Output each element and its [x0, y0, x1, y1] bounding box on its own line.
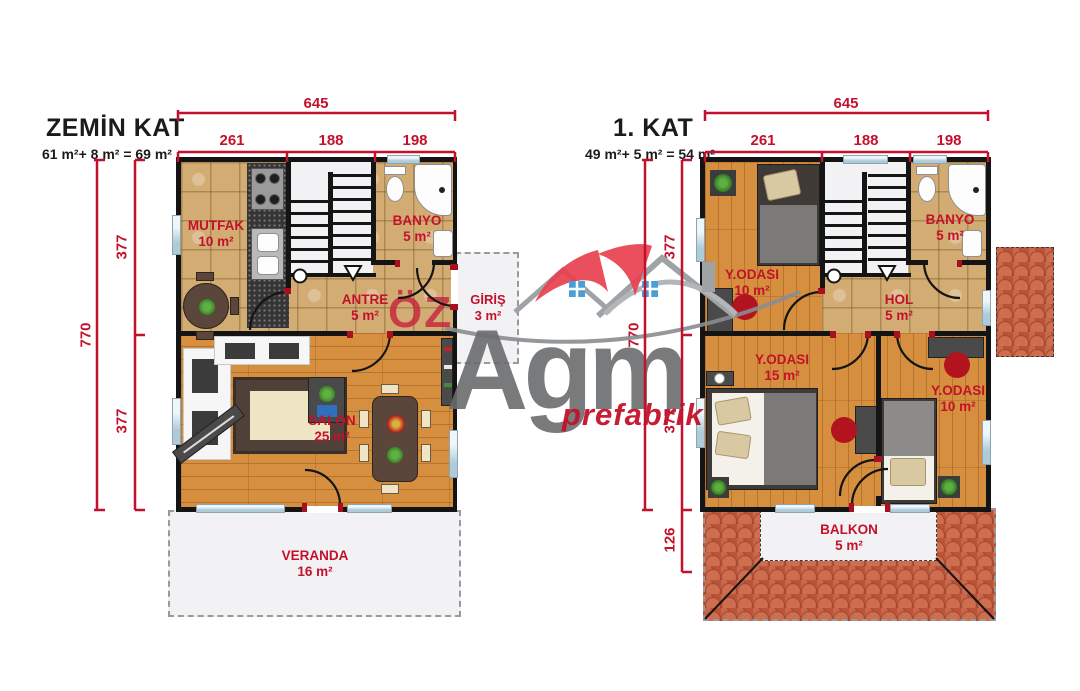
wall-bath2-bottom-b [960, 260, 986, 265]
window-bedroom10-south [890, 504, 930, 513]
logo-window-2 [642, 281, 658, 297]
window-kitchen-west [172, 215, 181, 255]
room-label-yodasi-10: Y.ODASI10 m² [931, 383, 985, 416]
bedroom1-plant [710, 170, 736, 196]
stair-center-rail [328, 172, 333, 273]
bedroom15-chair [831, 417, 857, 443]
stair-treads-right-flight-2 [868, 174, 908, 270]
dining-chair-e2 [421, 444, 431, 462]
dim-seg-126-right: 126 [662, 527, 679, 552]
stair-bottom-edge-2 [820, 273, 911, 277]
wall-bedroom1-stairs [820, 162, 825, 292]
dining-chair-n [381, 384, 399, 394]
toilet-tank-first [916, 166, 938, 175]
room-label-yodasi-15: Y.ODASI15 m² [755, 352, 809, 385]
window-salon-south-2 [347, 504, 392, 513]
dining-chair-w2 [359, 444, 369, 462]
dim-seg-377b-left: 377 [114, 408, 131, 433]
wall-between-bedrooms-a [876, 336, 881, 460]
first-floor-area-formula: 49 m²+ 5 m² = 54 m² [585, 146, 715, 162]
bed-single-bottom-pillow [890, 458, 926, 486]
watermark-tagline-text: prefabrik [562, 397, 704, 433]
room-label-mutfak: MUTFAK10 m² [188, 218, 244, 251]
kitchen-table [183, 283, 229, 329]
bed-double-pillow-2 [714, 431, 751, 459]
sofa-top [214, 336, 310, 365]
dim-total-width-left: 645 [303, 95, 328, 112]
room-label-antre: ANTRE5 m² [342, 292, 389, 325]
dim-total-width-right: 645 [833, 95, 858, 112]
bed-single-bottom-blanket [884, 401, 934, 456]
room-label-hol: HOL5 m² [885, 292, 914, 325]
dining-chair-e1 [421, 410, 431, 428]
logo-window-1 [569, 281, 585, 297]
staircase-ground [288, 162, 373, 273]
nightstand-lamp [714, 373, 725, 384]
kitchen-chair-n [196, 272, 214, 281]
wall-bath2-bottom-a [906, 260, 928, 265]
stair-bottom-edge [286, 273, 376, 277]
bedroom15-plant [708, 477, 729, 498]
floor-plan-canvas: ZEMİN KAT 61 m²+ 8 m² = 69 m² 645 261 18… [0, 0, 1080, 691]
room-label-banyo-ground: BANYO5 m² [393, 213, 442, 246]
logo-chimney [702, 262, 715, 292]
window-salon-east [449, 430, 458, 478]
dim-seg-377a-left: 377 [114, 234, 131, 259]
kitchen-chair-e [230, 297, 239, 315]
wall-bath-bottom-a [371, 260, 398, 265]
dim-seg-198-right: 198 [936, 132, 961, 149]
kitchen-chair-s [196, 331, 214, 340]
bed-double-blanket [764, 393, 816, 485]
dim-seg-188-right: 188 [853, 132, 878, 149]
dim-total-height-left: 770 [78, 322, 95, 347]
stair-treads-left-flight-2 [822, 200, 862, 270]
room-label-balkon: BALKON5 m² [820, 522, 878, 555]
bedroom10-chair [944, 352, 970, 378]
window-bedroom10-east [982, 420, 991, 465]
dim-seg-188-left: 188 [318, 132, 343, 149]
toilet-bowl-ground [386, 176, 404, 202]
room-label-giris: GİRİŞ3 m² [470, 292, 505, 324]
wall-bedrooms-top-c [932, 331, 986, 336]
room-label-yodasi-top: Y.ODASI10 m² [725, 267, 779, 300]
dining-table [372, 396, 418, 482]
roof-area-entry [996, 247, 1054, 357]
window-bedroom15-south [775, 504, 815, 513]
wall-kitchen-stairs [286, 162, 291, 292]
dim-seg-198-left: 198 [402, 132, 427, 149]
ground-floor-area-formula: 61 m²+ 8 m² = 69 m² [42, 146, 172, 162]
toilet-bowl-first [918, 176, 936, 202]
stair-center-rail-2 [862, 172, 867, 273]
dim-seg-261-left: 261 [219, 132, 244, 149]
ground-floor-title: ZEMİN KAT [46, 114, 185, 143]
window-hol-east [982, 290, 991, 326]
stair-treads-left-flight [288, 200, 328, 270]
watermark-oz-text: ÖZ [388, 288, 453, 338]
wall-bedrooms-top-b [868, 331, 897, 336]
wall-stairs-bath [371, 162, 376, 262]
staircase-first [822, 162, 908, 273]
stair-treads-right-flight [333, 174, 373, 270]
kitchen-sink [251, 228, 284, 280]
dining-chair-w1 [359, 410, 369, 428]
window-stairs-top [843, 155, 888, 164]
door-gap-balcony [852, 506, 888, 513]
room-label-banyo-first: BANYO5 m² [926, 212, 975, 245]
window-salon-west [172, 398, 181, 445]
first-floor-title: 1. KAT [613, 114, 693, 143]
window-bath2-top [913, 155, 947, 164]
window-salon-south-1 [196, 504, 285, 513]
stove [251, 168, 284, 210]
window-bath-top [387, 155, 420, 164]
door-gap-veranda [305, 506, 340, 513]
bedroom10-plant [938, 476, 960, 498]
wall-stairs-bath-2 [906, 162, 911, 262]
toilet-tank-ground [384, 166, 406, 175]
room-label-veranda: VERANDA16 m² [282, 548, 349, 581]
dim-seg-261-right: 261 [750, 132, 775, 149]
room-label-salon: SALON25 m² [308, 413, 355, 446]
bedroom15-desk [855, 406, 878, 454]
dining-chair-s [381, 484, 399, 494]
